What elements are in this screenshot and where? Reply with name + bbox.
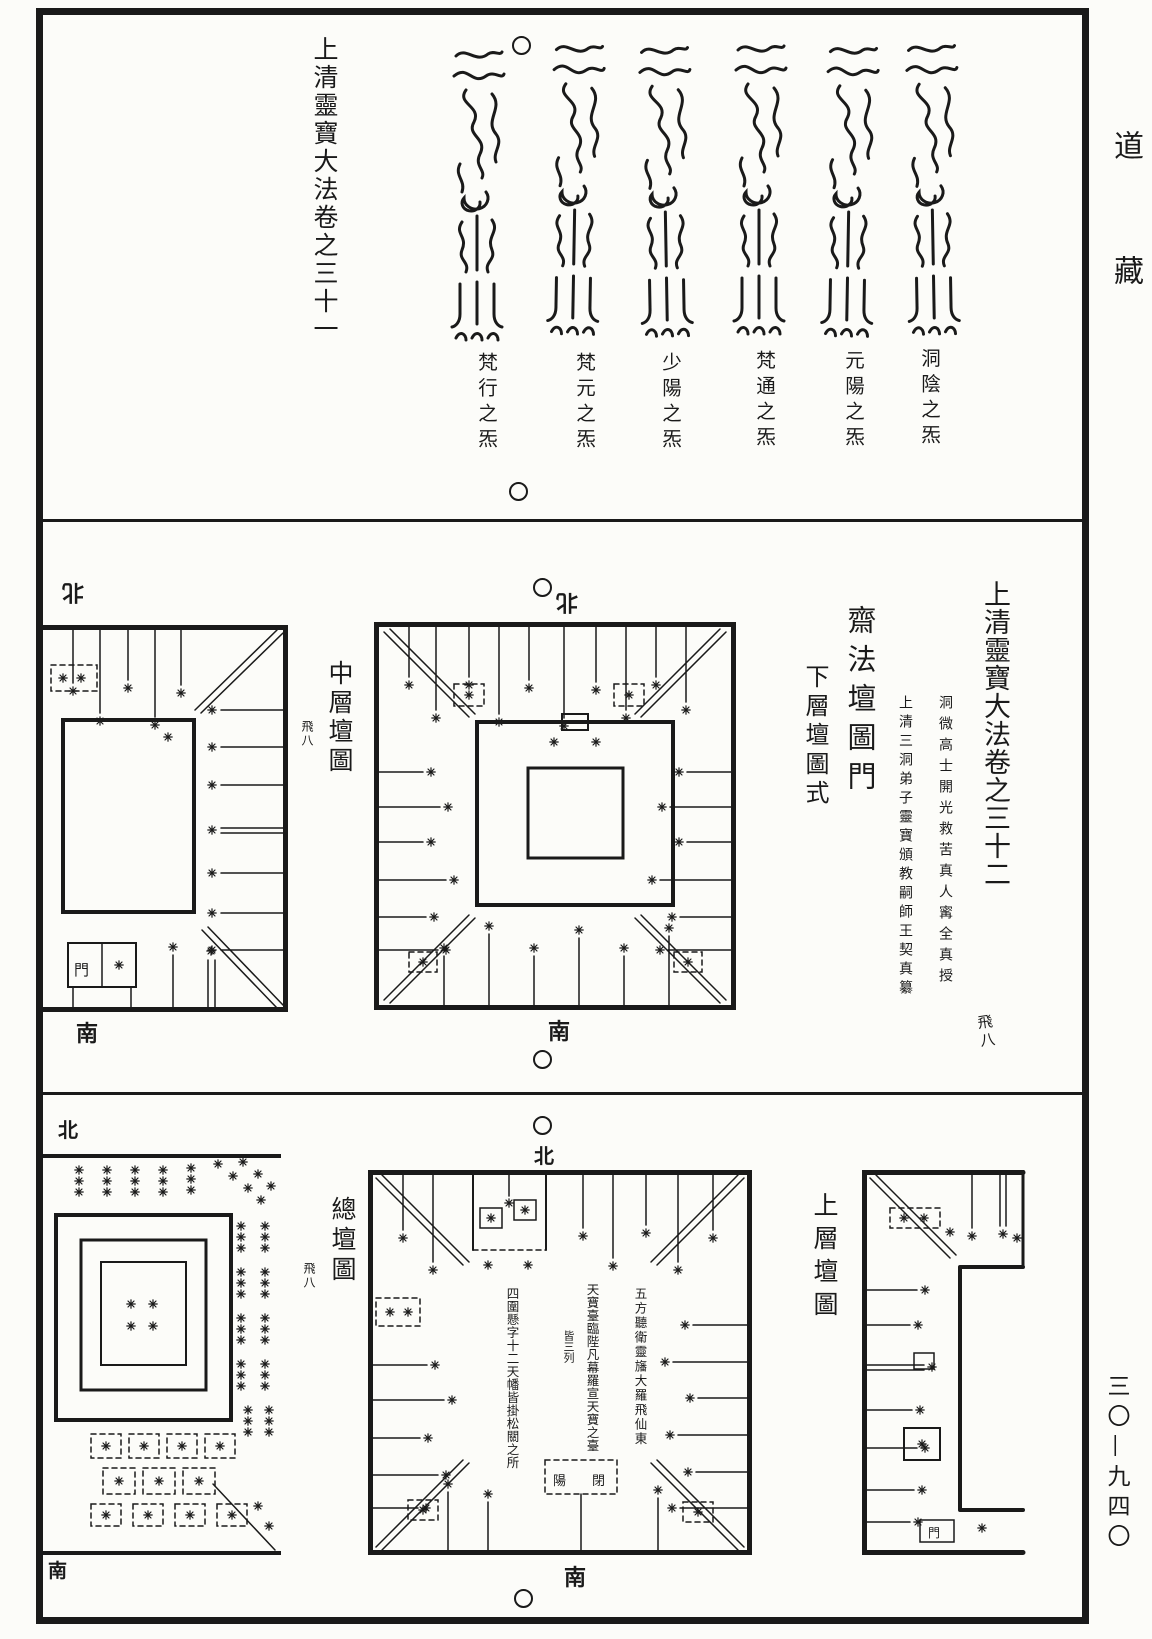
middle-center-north-label: 北: [556, 588, 578, 620]
bottom-left-south-label: 南: [48, 1556, 67, 1583]
section-divider-1: [43, 519, 1082, 522]
margin-collection-label: 道藏: [1110, 130, 1140, 380]
bottom-center-north-label: 北: [534, 1140, 554, 1169]
talisman-caption-4: 梵通之炁: [754, 350, 774, 452]
margin-page-number: 三〇—九四〇: [1104, 1374, 1127, 1554]
bottom-center-altar-diagram: 陽 閉: [368, 1170, 752, 1555]
middle-left-fascicle-marker: 飛八: [301, 720, 313, 748]
talisman-caption-1: 梵行之炁: [476, 352, 496, 454]
attribution-line-2: 上清三洞弟子靈寶頒教嗣師王契真纂: [898, 695, 912, 999]
fold-mark-circle: [514, 1589, 533, 1608]
middle-left-diagram-title: 中層壇圖: [327, 660, 352, 776]
volume-title-juan-32: 上清靈寶大法卷之三十二: [981, 580, 1008, 888]
bottom-left-fascicle-marker: 飛八: [303, 1262, 315, 1290]
talisman-caption-5: 元陽之炁: [843, 350, 863, 452]
fold-mark-circle: [533, 578, 552, 597]
bottom-right-altar-diagram: 門: [862, 1170, 1035, 1555]
subsection-title: 下層壇圖式: [803, 664, 827, 809]
middle-left-north-label: 北: [62, 578, 84, 610]
chapter-title: 齋法壇圖門: [845, 605, 874, 800]
talisman-caption-3: 少陽之炁: [660, 352, 680, 454]
bottom-center-annotation-right: 五方聽衛靈旛大羅飛仙東: [633, 1287, 646, 1447]
middle-center-altar-diagram: [374, 622, 736, 1010]
talisman-caption-6: 洞陰之炁: [919, 348, 939, 450]
section-divider-2: [43, 1092, 1082, 1095]
bottom-center-gate-yin-glyph: 閉: [592, 1474, 605, 1489]
talisman-glyph-6: [892, 39, 973, 340]
bottom-left-diagram-title: 總壇圖: [330, 1196, 355, 1286]
bottom-right-diagram-title: 上層壇圖: [812, 1192, 837, 1324]
middle-left-gate-glyph: 門: [74, 961, 89, 979]
talisman-glyph-5: [809, 41, 890, 342]
fold-mark-circle: [533, 1116, 552, 1135]
middle-left-altar-diagram: 門: [43, 625, 288, 1012]
talisman-glyph-4: [722, 40, 798, 340]
attribution-line-1: 洞微高士開光救苦真人寗全真授: [938, 695, 952, 989]
bottom-left-north-label: 北: [58, 1114, 78, 1143]
middle-left-south-label: 南: [76, 1016, 98, 1048]
bottom-center-annotation-center: 天寶臺臨陛凡幕羅宣天寶之臺: [585, 1283, 598, 1452]
talisman-glyph-2: [535, 39, 616, 340]
middle-center-south-label: 南: [548, 1014, 570, 1046]
fold-mark-circle: [509, 482, 528, 501]
bottom-center-south-label: 南: [564, 1560, 586, 1592]
talisman-glyph-1: [440, 46, 516, 346]
fascicle-marker: 飛八: [976, 1013, 996, 1051]
bottom-center-gate-yang-glyph: 陽: [553, 1474, 566, 1489]
volume-title-juan-31: 上清靈寶大法卷之三十一: [312, 36, 337, 344]
bottom-center-annotation-center-note: 皆三列: [563, 1330, 574, 1363]
bottom-center-annotation-left: 四圍懸字十二天幡皆掛松關之所: [505, 1287, 518, 1469]
scanned-daozang-page: 道藏 三〇—九四〇 上清靈寶大法卷之三十一 梵行之炁 梵元之炁 少陽之炁 梵通之…: [0, 0, 1152, 1639]
bottom-right-gate-glyph: 門: [928, 1526, 940, 1540]
fold-mark-circle: [533, 1050, 552, 1069]
talisman-caption-2: 梵元之炁: [574, 352, 594, 454]
bottom-left-altar-diagram: [43, 1154, 281, 1555]
talisman-glyph-3: [625, 41, 706, 342]
